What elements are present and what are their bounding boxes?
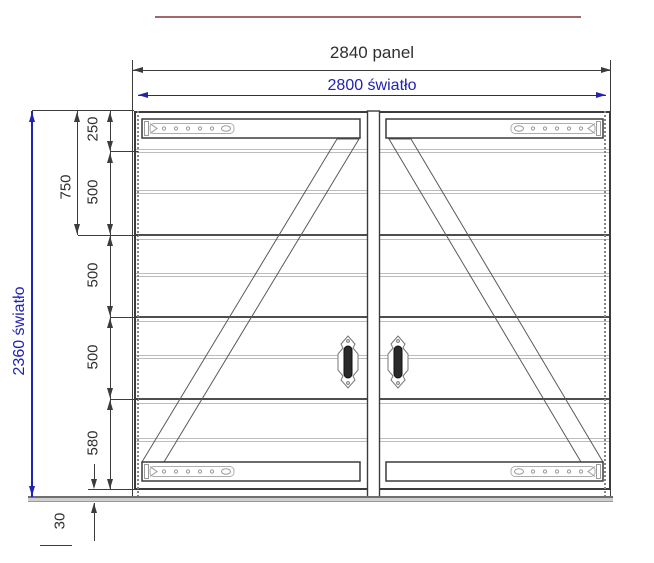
arrow-up-icon (74, 112, 80, 122)
arrow-up-icon (107, 153, 113, 163)
arrow-up-icon (107, 318, 113, 328)
dimension-label-500: 500 (85, 262, 102, 287)
dimension-label-500: 500 (85, 179, 102, 204)
arrow-up-icon (29, 112, 35, 122)
dimension-label-580: 580 (85, 430, 102, 455)
arrow-down-icon (91, 479, 97, 489)
dimension-label-750: 750 (58, 174, 75, 199)
sub-dimension-line-750 (77, 111, 78, 235)
clear-opening-line-right (604, 111, 606, 497)
clear-height-dimension-label: 2360 światło (11, 287, 29, 376)
ground-line (28, 496, 613, 502)
dimension-label-500: 500 (85, 344, 102, 369)
extension-line (78, 235, 138, 236)
dimension-label-30: 30 (52, 513, 69, 530)
arrow-down-icon (107, 306, 113, 316)
gap-dimension-line-upper (94, 464, 95, 480)
dimension-underline (40, 545, 72, 546)
arrow-up-icon (107, 236, 113, 246)
clear-opening-line-left (137, 111, 139, 497)
extension-line (111, 317, 138, 318)
arrow-down-icon (29, 486, 35, 496)
gate-handle-icon (338, 336, 358, 388)
chain-dimension-line (110, 111, 111, 490)
gate-handle-icon (388, 336, 408, 388)
arrow-down-icon (107, 141, 113, 151)
extension-line (88, 489, 134, 490)
arrow-up-icon (91, 503, 97, 513)
gate-technical-drawing: 2840 panel 2800 światło (0, 0, 654, 563)
arrow-down-icon (107, 388, 113, 398)
extension-line (32, 110, 134, 111)
diagonal-brace-right (389, 139, 603, 462)
arrow-down-icon (107, 479, 113, 489)
arrow-up-icon (107, 400, 113, 410)
arrow-down-icon (107, 224, 113, 234)
diagonal-brace-left (142, 139, 359, 462)
arrow-down-icon (74, 224, 80, 234)
center-astragal (368, 111, 380, 500)
extension-line (111, 151, 138, 152)
extension-line (111, 399, 138, 400)
clear-height-dimension-line (31, 111, 33, 497)
dimension-label-250: 250 (85, 116, 102, 141)
arrow-up-icon (107, 112, 113, 122)
